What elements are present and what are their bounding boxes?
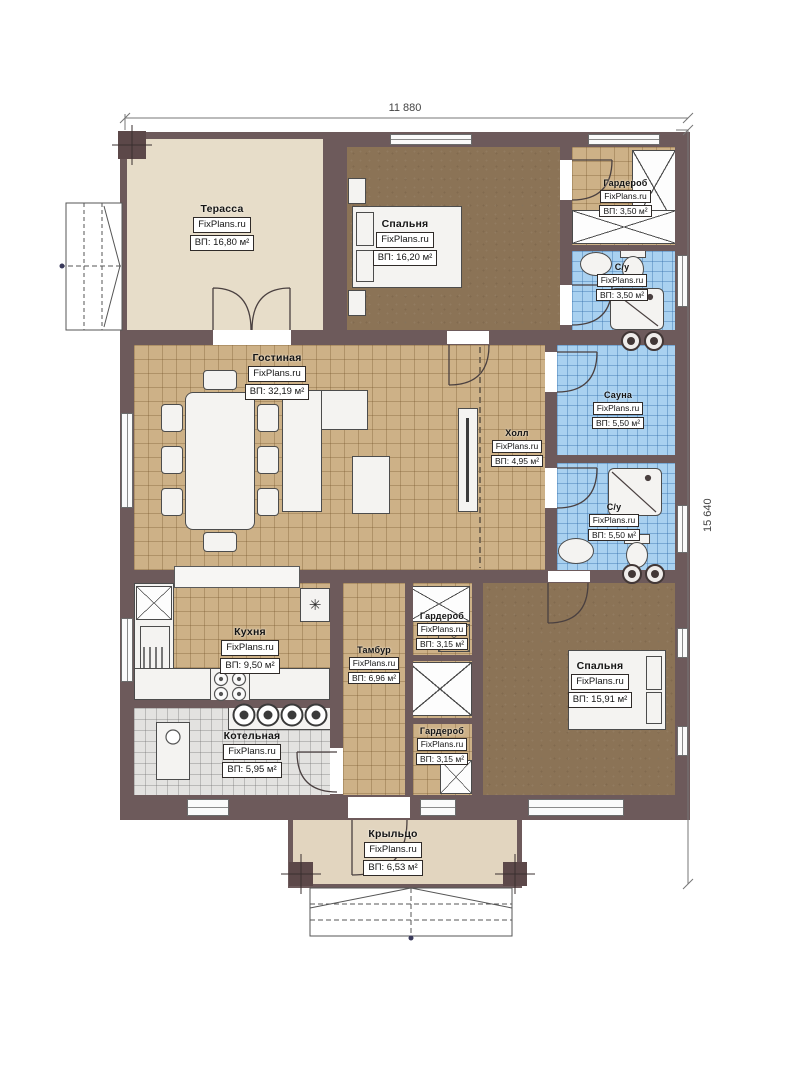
area-box: ВП: 9,50 м² — [220, 658, 279, 674]
brand-box: FixPlans.ru — [492, 440, 543, 453]
area-box: ВП: 16,20 м² — [373, 250, 438, 266]
brand-box: FixPlans.ru — [248, 366, 306, 382]
area-box: ВП: 6,53 м² — [363, 860, 422, 876]
hall-door — [449, 345, 489, 385]
brand-box: FixPlans.ru — [193, 217, 251, 233]
room-label-sauna: Сауна FixPlans.ru ВП: 5,50 м² — [572, 390, 664, 429]
area-box: ВП: 32,19 м² — [245, 384, 310, 400]
french-door-left — [213, 288, 251, 330]
brand-box: FixPlans.ru — [600, 190, 651, 203]
dimension-width-label: 11 880 — [360, 102, 450, 114]
area-box: ВП: 6,96 м² — [348, 672, 400, 685]
brand-box: FixPlans.ru — [223, 744, 281, 760]
room-label-bedroom-top: Спальня FixPlans.ru ВП: 16,20 м² — [348, 218, 462, 266]
room-label-wardrobe-bottom: Гардероб FixPlans.ru ВП: 3,15 м² — [402, 726, 482, 765]
french-door-right — [252, 288, 290, 330]
area-box: ВП: 15,91 м² — [568, 692, 633, 708]
room-label-terrace: Терасса FixPlans.ru ВП: 16,80 м² — [160, 203, 284, 251]
brand-box: FixPlans.ru — [417, 738, 468, 751]
boiler-dial — [166, 730, 180, 744]
area-box: ВП: 16,80 м² — [190, 235, 255, 251]
area-box: ВП: 3,15 м² — [416, 638, 468, 651]
room-label-wardrobe-mid: Гардероб FixPlans.ru ВП: 3,15 м² — [402, 611, 482, 650]
brand-box: FixPlans.ru — [597, 274, 648, 287]
stove-burners — [215, 673, 246, 701]
area-box: ВП: 3,15 м² — [416, 753, 468, 766]
dimension-height-label: 15 640 — [702, 498, 714, 532]
room-name: С/у — [580, 262, 664, 272]
sauna-door — [557, 352, 597, 392]
brand-box: FixPlans.ru — [589, 514, 640, 527]
area-box: ВП: 5,50 м² — [588, 529, 640, 542]
room-name: Холл — [480, 428, 554, 438]
room-name: Крыльцо — [338, 828, 448, 840]
room-label-bath-top: С/у FixPlans.ru ВП: 3,50 м² — [580, 262, 664, 301]
room-name: Котельная — [198, 730, 306, 742]
brand-box: FixPlans.ru — [364, 842, 422, 858]
room-name: Терасса — [160, 203, 284, 215]
plan-linework-layer — [0, 0, 792, 1080]
room-name: Сауна — [572, 390, 664, 400]
room-name: Спальня — [348, 218, 462, 230]
room-name: С/у — [570, 502, 658, 512]
brand-box: FixPlans.ru — [349, 657, 400, 670]
area-box: ВП: 5,50 м² — [592, 417, 644, 430]
room-name: Гардероб — [402, 611, 482, 621]
room-name: Кухня — [200, 626, 300, 638]
room-label-vestibule: Тамбур FixPlans.ru ВП: 6,96 м² — [328, 645, 420, 684]
area-box: ВП: 5,95 м² — [222, 762, 281, 778]
brand-box: FixPlans.ru — [417, 623, 468, 636]
bedroom-bottom-door — [548, 583, 588, 623]
terrace-stairs — [60, 203, 123, 330]
room-label-boiler: Котельная FixPlans.ru ВП: 5,95 м² — [198, 730, 306, 778]
room-label-porch: Крыльцо FixPlans.ru ВП: 6,53 м² — [338, 828, 448, 876]
room-name: Спальня — [540, 660, 660, 672]
boiler-equipment-circles — [234, 705, 327, 726]
floor-plan-canvas: ✳ — [0, 0, 792, 1080]
area-box: ВП: 3,50 м² — [596, 289, 648, 302]
washer-circles — [622, 332, 664, 583]
brand-box: FixPlans.ru — [376, 232, 434, 248]
brand-box: FixPlans.ru — [571, 674, 629, 690]
area-box: ВП: 3,50 м² — [599, 205, 651, 218]
brand-box: FixPlans.ru — [221, 640, 279, 656]
porch-stairs — [310, 888, 512, 941]
brand-box: FixPlans.ru — [593, 402, 644, 415]
room-name: Гардероб — [402, 726, 482, 736]
room-label-bedroom-bottom: Спальня FixPlans.ru ВП: 15,91 м² — [540, 660, 660, 708]
room-label-kitchen: Кухня FixPlans.ru ВП: 9,50 м² — [200, 626, 300, 674]
area-box: ВП: 4,95 м² — [491, 455, 543, 468]
room-name: Гостиная — [222, 352, 332, 364]
room-name: Гардероб — [578, 178, 673, 188]
room-label-bath-mid: С/у FixPlans.ru ВП: 5,50 м² — [570, 502, 658, 541]
room-label-living: Гостиная FixPlans.ru ВП: 32,19 м² — [222, 352, 332, 400]
room-label-wardrobe-top: Гардероб FixPlans.ru ВП: 3,50 м² — [578, 178, 673, 217]
room-label-hall: Холл FixPlans.ru ВП: 4,95 м² — [480, 428, 554, 467]
